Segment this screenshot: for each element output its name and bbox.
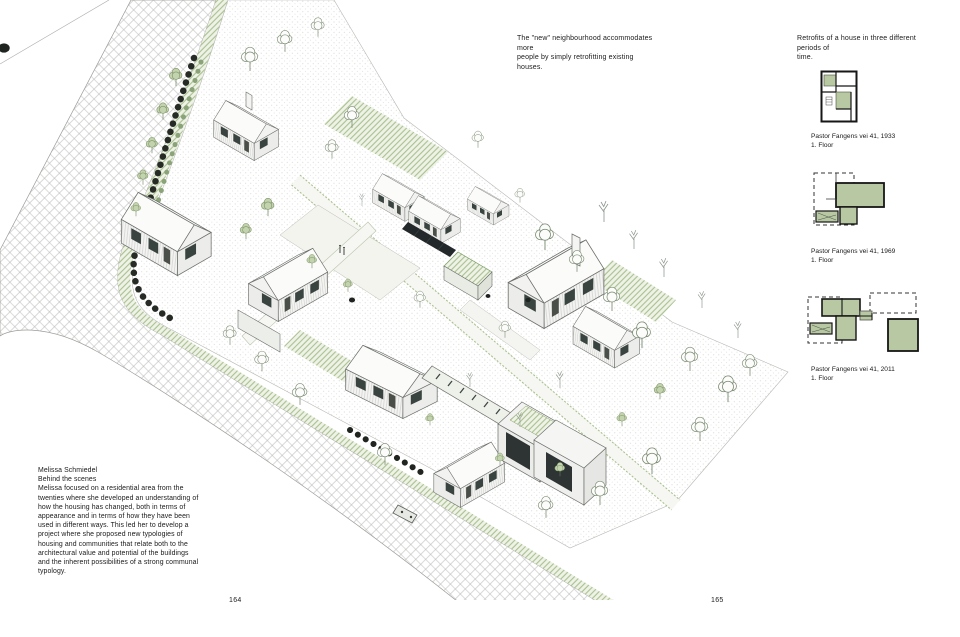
- plan-address: Pastor Fangens vei 41, 1969: [811, 247, 941, 256]
- caption-line: people by simply retrofitting existing h…: [517, 53, 657, 72]
- plan-floor: 1. Floor: [811, 374, 941, 383]
- plan-floor: 1. Floor: [811, 141, 941, 150]
- project-description: Melissa Schmiedel Behind the scenes Meli…: [38, 466, 201, 576]
- floor-plan-1969-caption: Pastor Fangens vei 41, 1969 1. Floor: [811, 247, 941, 265]
- floor-plan-1969: [812, 171, 886, 233]
- plan-floor: 1. Floor: [811, 256, 941, 265]
- floor-plan-2011: [806, 289, 924, 359]
- book-spread: The "new" neighbourhood accommodates mor…: [0, 0, 960, 637]
- caption-line: Retrofits of a house in three different …: [797, 34, 932, 53]
- project-body: Melissa focused on a residential area fr…: [38, 485, 198, 575]
- caption-line: time.: [797, 53, 932, 63]
- illustration-caption: The "new" neighbourhood accommodates mor…: [517, 34, 657, 72]
- floor-plan-2011-caption: Pastor Fangens vei 41, 2011 1. Floor: [811, 365, 941, 383]
- plan-address: Pastor Fangens vei 41, 1933: [811, 132, 941, 141]
- caption-line: The "new" neighbourhood accommodates mor…: [517, 34, 657, 53]
- retrofits-caption: Retrofits of a house in three different …: [797, 34, 932, 63]
- floor-plan-1933-caption: Pastor Fangens vei 41, 1933 1. Floor: [811, 132, 941, 150]
- author-name: Melissa Schmiedel: [38, 466, 201, 475]
- page-number-right: 165: [711, 597, 724, 604]
- project-title: Behind the scenes: [38, 475, 201, 484]
- floor-plan-1933: [820, 70, 860, 125]
- page-number-left: 164: [229, 597, 242, 604]
- plan-address: Pastor Fangens vei 41, 2011: [811, 365, 941, 374]
